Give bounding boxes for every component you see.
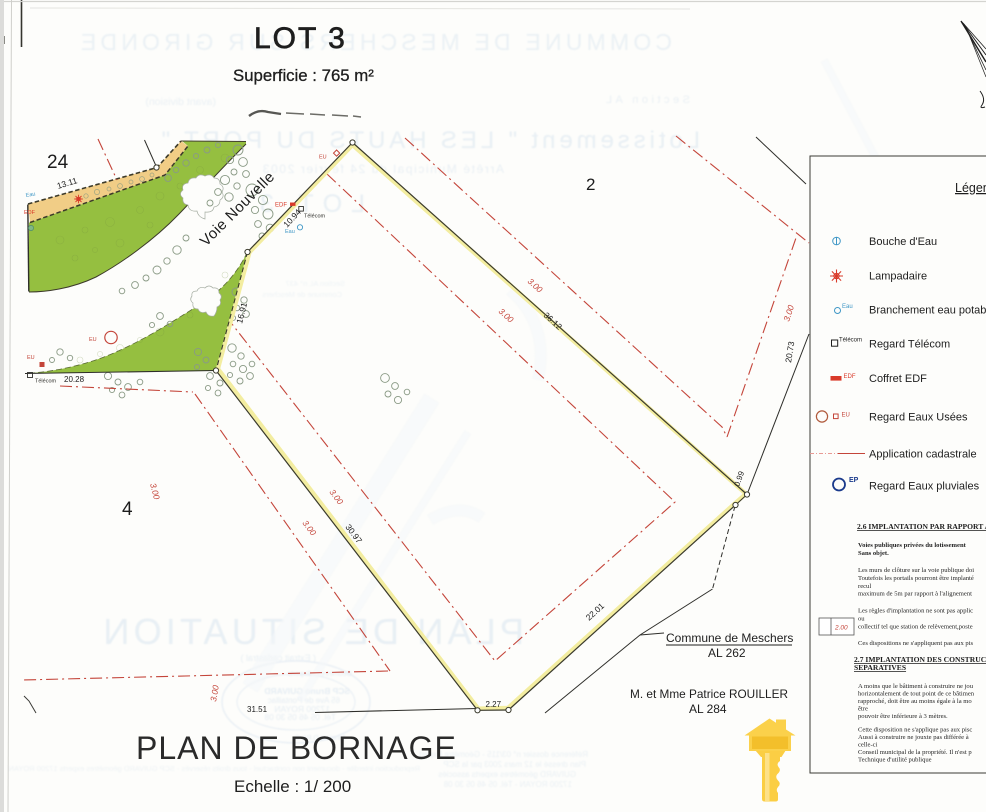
svg-text:24: 24 [47,152,69,173]
svg-text:Ces dispositions ne s'applique: Ces dispositions ne s'appliquent pas aux… [858,640,974,647]
svg-text:ou: ou [858,616,865,623]
svg-text:Cette disposition ne s'appliq: Cette disposition ne s'applique pas aux … [858,727,972,734]
svg-text:LOT 3: LOT 3 [254,22,347,55]
svg-text:2.00: 2.00 [834,625,848,632]
svg-text:Sans objet.: Sans objet. [858,550,889,557]
svg-text:recul: recul [858,583,871,590]
svg-text:celle-ci: celle-ci [858,742,878,749]
svg-text:Légende: Légende [955,181,986,195]
svg-text:2.6 IMPLANTATION PAR RAPPORT A: 2.6 IMPLANTATION PAR RAPPORT A [857,522,986,531]
svg-text:collectif tel que station de: collectif tel que station de relèvement,… [858,624,973,631]
svg-text:Bouche d'Eau: Bouche d'Eau [869,236,937,248]
svg-text:Télécom: Télécom [304,214,326,220]
svg-text:être: être [858,706,868,713]
svg-text:Plan dressé le 12 mars 2003 pa: Plan dressé le 12 mars 2003 par la SCP [443,760,586,769]
svg-text:Eau: Eau [842,304,853,310]
svg-text:M. et Mme Patrice ROUILLER: M. et Mme Patrice ROUILLER [630,687,788,701]
svg-text:Technique d'utilité publique: Technique d'utilité publique [858,757,932,764]
svg-text:GUIVARD géomètres experts asso: GUIVARD géomètres experts associés [438,770,576,779]
svg-text:Branchement eau potable: Branchement eau potable [869,305,986,317]
svg-text:Les règles d'implantation ne s: Les règles d'implantation ne sont pas ap… [858,608,973,615]
svg-text:COMMUNE DE MESCHERS SUR GI: COMMUNE DE MESCHERS SUR GIRONDE [77,29,672,55]
svg-text:Section AL n° 437: Section AL n° 437 [286,279,345,288]
svg-text:Commune de Meschers: Commune de Meschers [262,290,342,299]
svg-text:EU: EU [27,355,35,361]
svg-text:Superficie : 765 m²: Superficie : 765 m² [233,66,374,85]
svg-text:horizontalement de tout point: horizontalement de tout point de ce bâti… [858,691,975,698]
svg-text:EU: EU [319,155,327,161]
svg-text:Eau: Eau [285,229,295,235]
svg-text:4: 4 [122,499,133,520]
svg-text:Application cadastrale: Application cadastrale [869,449,977,461]
svg-text:Regard Eaux Usées: Regard Eaux Usées [869,412,968,424]
svg-text:17200 ROYAN - Tél. 05 46 05 30: 17200 ROYAN - Tél. 05 46 05 30 08 [443,780,572,789]
svg-text:31.51: 31.51 [247,705,268,714]
svg-text:PLAN DE BORNAGE: PLAN DE BORNAGE [136,730,457,766]
svg-text:Aussi à construire ne jouxt: Aussi à construire ne jouxte pas différé… [858,734,969,741]
svg-text:Regard Télécom: Regard Télécom [869,339,950,351]
svg-text:20.28: 20.28 [64,375,85,384]
svg-text:EU: EU [89,337,97,343]
svg-text:Les murs de clôture sur la voi: Les murs de clôture sur la voie publique… [858,567,974,574]
svg-text:EP: EP [849,477,859,484]
svg-text:Echelle : 1/ 200: Echelle : 1/ 200 [234,777,351,796]
svg-text:Tél. 05 46 05 30 08: Tél. 05 46 05 30 08 [264,712,336,722]
svg-text:(avant division): (avant division) [145,96,216,108]
svg-text:Lampadaire: Lampadaire [869,271,927,283]
svg-text:2.27: 2.27 [486,700,502,709]
svg-text:pouvoir être inférieure à 3 mè: pouvoir être inférieure à 3 mètres. [858,713,948,720]
svg-text:Télécom: Télécom [35,379,57,385]
svg-text:Coffret EDF: Coffret EDF [869,373,927,385]
svg-text:2: 2 [586,175,595,194]
svg-text:Regard Eaux pluviales: Regard Eaux pluviales [869,481,980,493]
svg-text:EU: EU [842,413,850,419]
svg-text:EDF: EDF [24,210,36,216]
svg-text:maximum de 5m par rapport à l': maximum de 5m par rapport à l'alignement [858,591,972,598]
svg-text:A moins que le bâtiment à cons: A moins que le bâtiment à construire ne … [858,683,974,690]
svg-text:EDF: EDF [275,203,287,209]
svg-text:Conseil municipal de la propri: Conseil municipal de la propriété. Il n'… [858,749,972,756]
svg-text:AL 262: AL 262 [708,646,746,660]
svg-text:Commune de Meschers: Commune de Meschers [666,631,793,645]
svg-text:AL 284: AL 284 [689,702,727,716]
svg-text:EDF: EDF [844,374,856,380]
svg-text:Voies publiques privées du lot: Voies publiques privées du lotissement [858,542,967,549]
svg-text:Section AL: Section AL [602,94,690,106]
svg-text:rapproché, doit être au moins: rapproché, doit être au moins égale à la… [858,698,972,705]
svg-text:SEPARATIVES: SEPARATIVES [854,663,906,672]
svg-text:Télécom: Télécom [839,338,862,344]
svg-text:Toutefois les portails pourron: Toutefois les portails pourront être imp… [858,575,974,582]
